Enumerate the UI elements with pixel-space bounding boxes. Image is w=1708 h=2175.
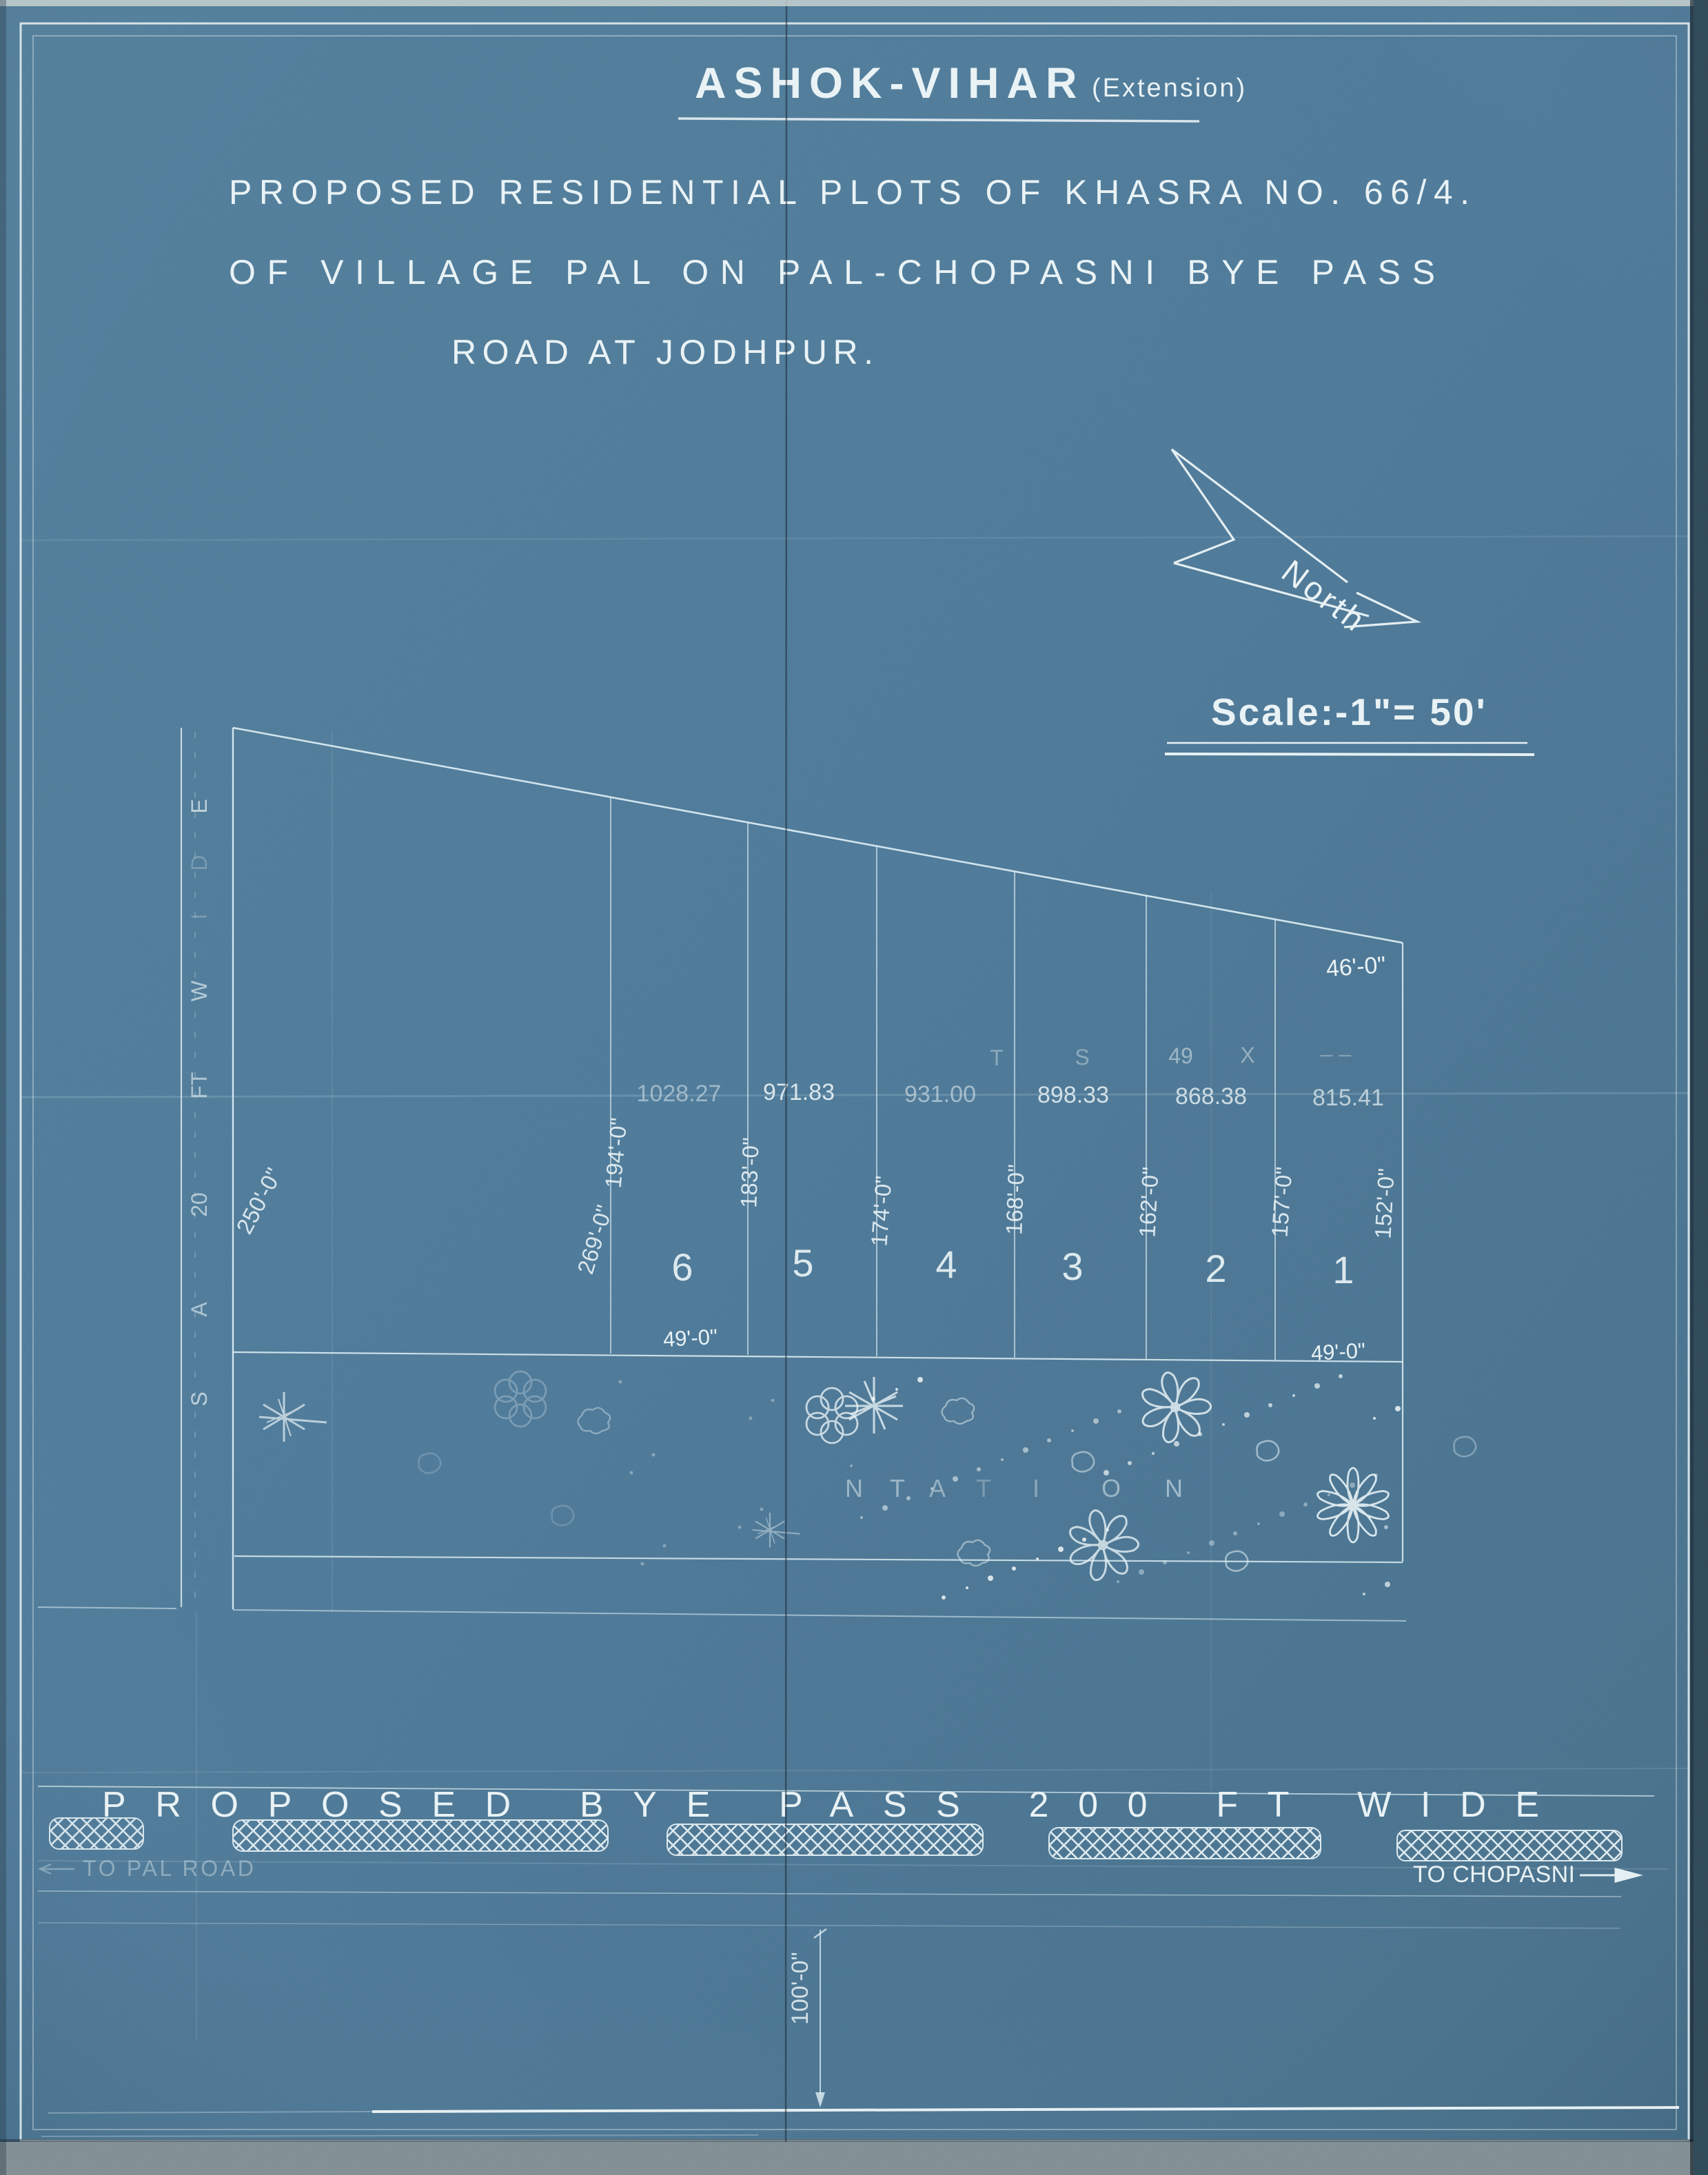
plantation-dot (1071, 1429, 1074, 1432)
plantation-dot (988, 1575, 993, 1581)
plantation-dot (1374, 1473, 1378, 1478)
plantation-dot (977, 1467, 981, 1471)
plantation-dot (630, 1471, 633, 1475)
plantation-dot (1187, 1551, 1190, 1554)
plantation-dot (966, 1586, 968, 1589)
plantation-letter: N (845, 1474, 863, 1502)
plantation-dot (1363, 1593, 1365, 1595)
side-dim: 162'-0" (1134, 1166, 1163, 1238)
to-chopasni-label: TO CHOPASNI (1413, 1861, 1575, 1888)
plantation-dot (1128, 1461, 1132, 1465)
plantation-dot (1174, 1441, 1179, 1447)
plantation-dot (1163, 1560, 1167, 1564)
plantation-dot (1292, 1394, 1295, 1397)
west-road-letter: D (187, 855, 212, 870)
plantation-dot (1023, 1447, 1028, 1453)
plot-area-value: 898.33 (1037, 1082, 1109, 1108)
plantation-dot (1036, 1558, 1039, 1560)
ghost-letter: S (1075, 1045, 1089, 1070)
plantation-dot (1244, 1412, 1250, 1418)
subtitle-line-3: ROAD AT JODHPUR. (451, 333, 873, 371)
scale-label: Scale:-1"= 50' (1211, 691, 1487, 733)
plot-area-value: 815.41 (1312, 1085, 1384, 1111)
dim-frontage-left: 49'-0" (662, 1325, 718, 1351)
page-title-suffix: (Extension) (1092, 74, 1247, 103)
plantation-dot (850, 1464, 853, 1467)
plantation-dot (1209, 1540, 1214, 1546)
plantation-dot (1198, 1432, 1202, 1436)
road-hatch-bar (50, 1818, 143, 1849)
side-dim: 157'-0" (1267, 1166, 1297, 1238)
west-road-letter: W (187, 980, 212, 1001)
plantation-dot (738, 1526, 742, 1529)
road-hatch-bar (1049, 1828, 1321, 1859)
plantation-dot (860, 1516, 863, 1519)
side-dim: 168'-0" (1001, 1164, 1029, 1236)
plantation-dot (1339, 1374, 1343, 1378)
plantation-dot (1082, 1538, 1086, 1542)
side-dim: 152'-0" (1370, 1167, 1399, 1239)
ghost-letter: 49 (1168, 1043, 1193, 1068)
dim-frontage-right: 49'-0" (1310, 1338, 1366, 1365)
dim-south-road: 100'-0" (787, 1952, 813, 2025)
plantation-dot (663, 1544, 667, 1548)
plot-area-value: 971.83 (763, 1079, 835, 1105)
ghost-letter: – – (1321, 1041, 1352, 1066)
to-pal-road-label: TO PAL ROAD (83, 1856, 254, 1881)
plantation-letter: T (976, 1474, 991, 1502)
plantation-dot (641, 1562, 644, 1566)
west-road-letter: E (187, 799, 212, 813)
plantation-dot (1268, 1403, 1272, 1407)
plantation-dot (953, 1476, 958, 1482)
plantation-dot (931, 1487, 933, 1490)
plantation-dot (1328, 1493, 1330, 1496)
plantation-dot (1373, 1417, 1376, 1420)
side-dim: 174'-0" (866, 1175, 897, 1247)
road-hatch-bar (667, 1824, 983, 1855)
plantation-letter: O (1101, 1474, 1121, 1502)
plantation-dot (771, 1399, 775, 1402)
plantation-dot (906, 1496, 911, 1500)
plot-area-value: 868.38 (1175, 1083, 1247, 1110)
plantation-dot (942, 1595, 946, 1600)
plot-number: 1 (1332, 1248, 1354, 1291)
site-plan-drawing: ASHOK-VIHAR (Extension) PROPOSED RESIDEN… (0, 0, 1708, 2175)
plantation-letter: N (1165, 1474, 1183, 1502)
plot-number: 3 (1061, 1245, 1083, 1288)
road-hatch-bar (1397, 1830, 1622, 1861)
plantation-dot (652, 1453, 655, 1457)
plantation-dot (749, 1417, 753, 1420)
scale-underline-2 (1165, 754, 1534, 755)
west-road-letter: FT (187, 1072, 212, 1099)
plantation-dot (1152, 1452, 1155, 1455)
plantation-dot (1279, 1511, 1285, 1517)
plot-number: 5 (792, 1241, 813, 1285)
west-road-letter: 20 (187, 1192, 212, 1217)
plantation-dot (917, 1377, 923, 1382)
plantation-dot (1117, 1580, 1119, 1583)
plantation-dot (1303, 1502, 1308, 1507)
page-title: ASHOK-VIHAR (695, 59, 1085, 108)
plantation-dot (760, 1508, 764, 1511)
plantation-dot (1384, 1525, 1388, 1529)
plot-number: 4 (935, 1243, 957, 1286)
plantation-dot (1117, 1409, 1121, 1413)
plantation-dot (1257, 1522, 1260, 1525)
plantation-dot (1350, 1482, 1355, 1488)
plantation-dot (1314, 1383, 1320, 1389)
plantation-dot (1093, 1418, 1099, 1424)
side-dim: 183'-0" (735, 1137, 764, 1209)
plantation-dot (1106, 1529, 1109, 1531)
plantation-dot (1139, 1569, 1144, 1575)
plantation-dot (895, 1388, 898, 1391)
plot-area-value: 931.00 (904, 1081, 976, 1107)
blueprint-sheet: ASHOK-VIHAR (Extension) PROPOSED RESIDEN… (0, 0, 1708, 2175)
center-fold-line (786, 0, 786, 2175)
plantation-dot (1047, 1438, 1051, 1442)
plantation-dot (882, 1505, 888, 1511)
plantation-dot (871, 1397, 875, 1401)
plot-area-value: 1028.27 (637, 1081, 722, 1107)
road-hatch-bar (233, 1820, 608, 1851)
plantation-dot (1104, 1470, 1109, 1475)
plantation-dot (619, 1380, 622, 1384)
west-road-letter: A (187, 1302, 212, 1317)
plantation-dot (1233, 1531, 1237, 1535)
plantation-dot (1012, 1566, 1016, 1571)
ghost-letter: X (1240, 1043, 1254, 1068)
dim-top-right: 46'-0" (1325, 952, 1387, 982)
ghost-letter: T (990, 1045, 1004, 1070)
plantation-dot (1001, 1458, 1004, 1461)
west-road-letter: S (187, 1391, 212, 1406)
plot-number: 6 (671, 1245, 693, 1289)
plot-number: 2 (1205, 1247, 1226, 1290)
plantation-dot (1385, 1582, 1390, 1587)
plantation-dot (1222, 1423, 1225, 1426)
plantation-letter: T (890, 1474, 905, 1502)
plantation-dot (1395, 1406, 1401, 1411)
plantation-dot (1058, 1546, 1064, 1552)
west-road-letter: I (187, 914, 212, 920)
plantation-letter: I (1033, 1474, 1039, 1502)
